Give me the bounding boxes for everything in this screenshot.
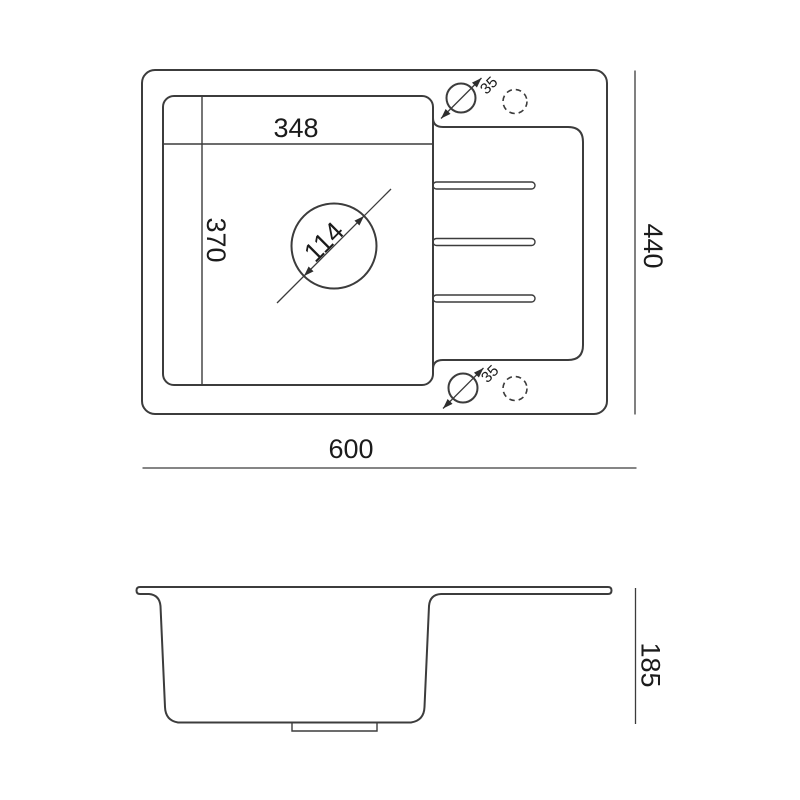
drainer-groove: [433, 239, 535, 246]
side-profile-outline: [137, 587, 612, 723]
tap-hole-top: 35: [439, 74, 527, 121]
tap-hole-diameter-label: 35: [478, 362, 502, 386]
optional-tap-hole-dashed-circle: [503, 377, 527, 401]
drain-flange-outline: [292, 723, 377, 732]
bowl-depth-label: 370: [201, 217, 231, 262]
tap-hole-diameter-label: 35: [477, 74, 501, 98]
drainer-groove: [433, 295, 535, 302]
optional-tap-hole-dashed-circle: [503, 90, 527, 114]
drain-hole: 114: [277, 189, 391, 303]
top-view: 114 35 35 348 3: [142, 70, 668, 468]
sink-dimension-drawing: 114 35 35 348 3: [0, 0, 800, 800]
side-view: 185: [137, 587, 666, 731]
tap-hole-bottom: 35: [441, 362, 527, 411]
drain-diameter-label: 114: [298, 216, 350, 268]
technical-drawing-svg: 114 35 35 348 3: [0, 0, 800, 800]
drainer-groove: [433, 182, 535, 189]
height-label: 185: [636, 642, 666, 687]
drainer-board-outline: [433, 118, 583, 369]
bowl-width-label: 348: [273, 113, 318, 143]
overall-width-label: 600: [328, 434, 373, 464]
overall-depth-label: 440: [638, 223, 668, 268]
